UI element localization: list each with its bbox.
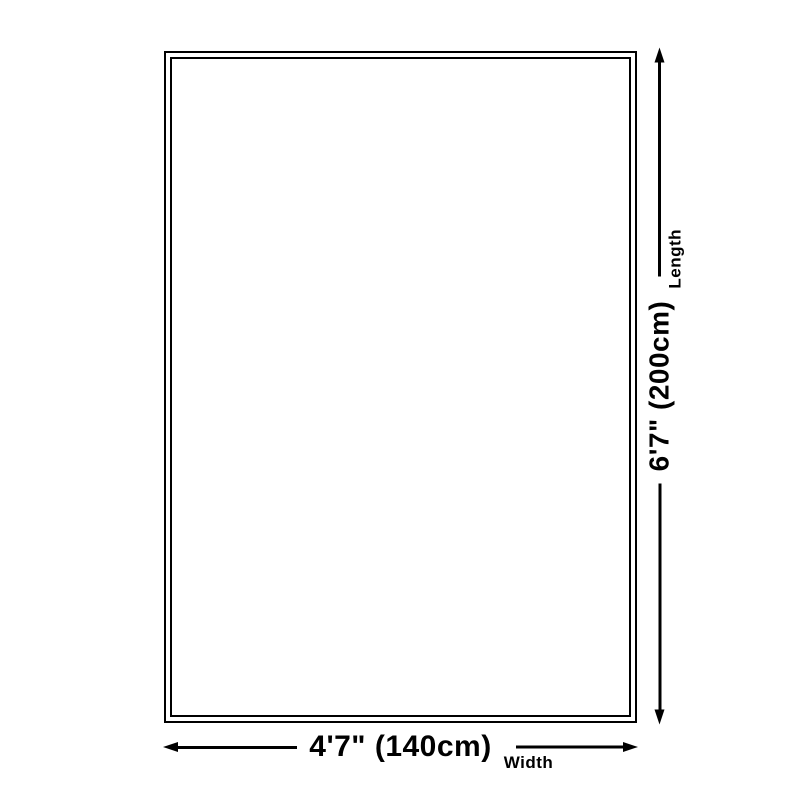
rug-outline bbox=[164, 51, 637, 723]
length-dimension-line-top: Length bbox=[638, 62, 682, 288]
arrow-right-icon bbox=[623, 742, 638, 752]
length-dimension: 6'7" (200cm) Length bbox=[638, 48, 682, 725]
rug-size-diagram: 4'7" (140cm) Width 6'7" (200cm) Length bbox=[0, 0, 800, 800]
width-dimension-line-right: Width bbox=[504, 725, 623, 769]
length-axis-label: Length bbox=[667, 229, 684, 289]
width-axis-label: Width bbox=[504, 754, 554, 771]
length-dimension-line-bottom bbox=[658, 483, 661, 709]
arrow-down-icon bbox=[655, 710, 665, 725]
width-value: 4'7" (140cm) bbox=[309, 732, 491, 762]
arrow-left-icon bbox=[163, 742, 178, 752]
length-value: 6'7" (200cm) bbox=[646, 301, 674, 472]
width-dimension-line-left bbox=[178, 746, 297, 749]
rug-inner-border bbox=[170, 57, 631, 717]
arrow-up-icon bbox=[655, 47, 665, 62]
width-dimension: 4'7" (140cm) Width bbox=[163, 725, 638, 769]
